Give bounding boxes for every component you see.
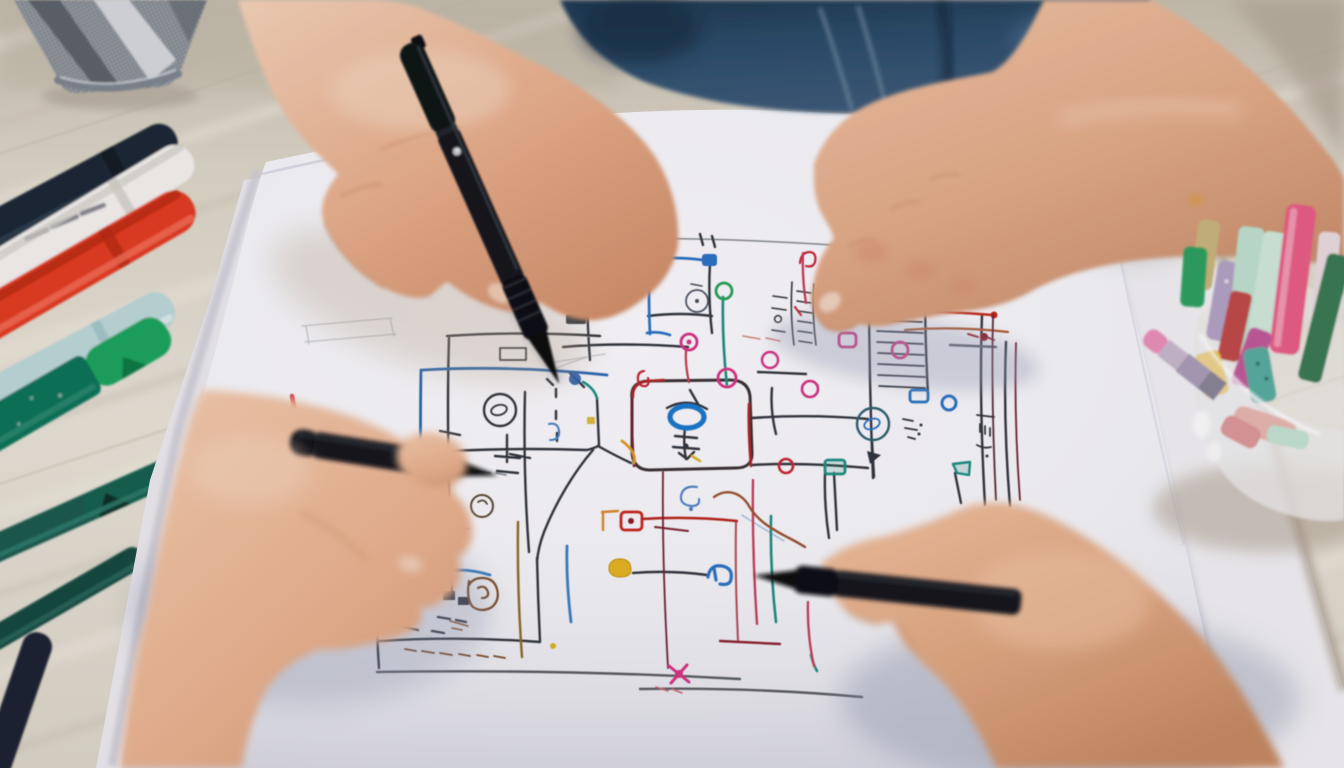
vignette xyxy=(0,0,1344,768)
scene-canvas: Three hands sketching a colorful floor-p… xyxy=(0,0,1344,768)
photo-scene: Three hands sketching a colorful floor-p… xyxy=(0,0,1344,768)
